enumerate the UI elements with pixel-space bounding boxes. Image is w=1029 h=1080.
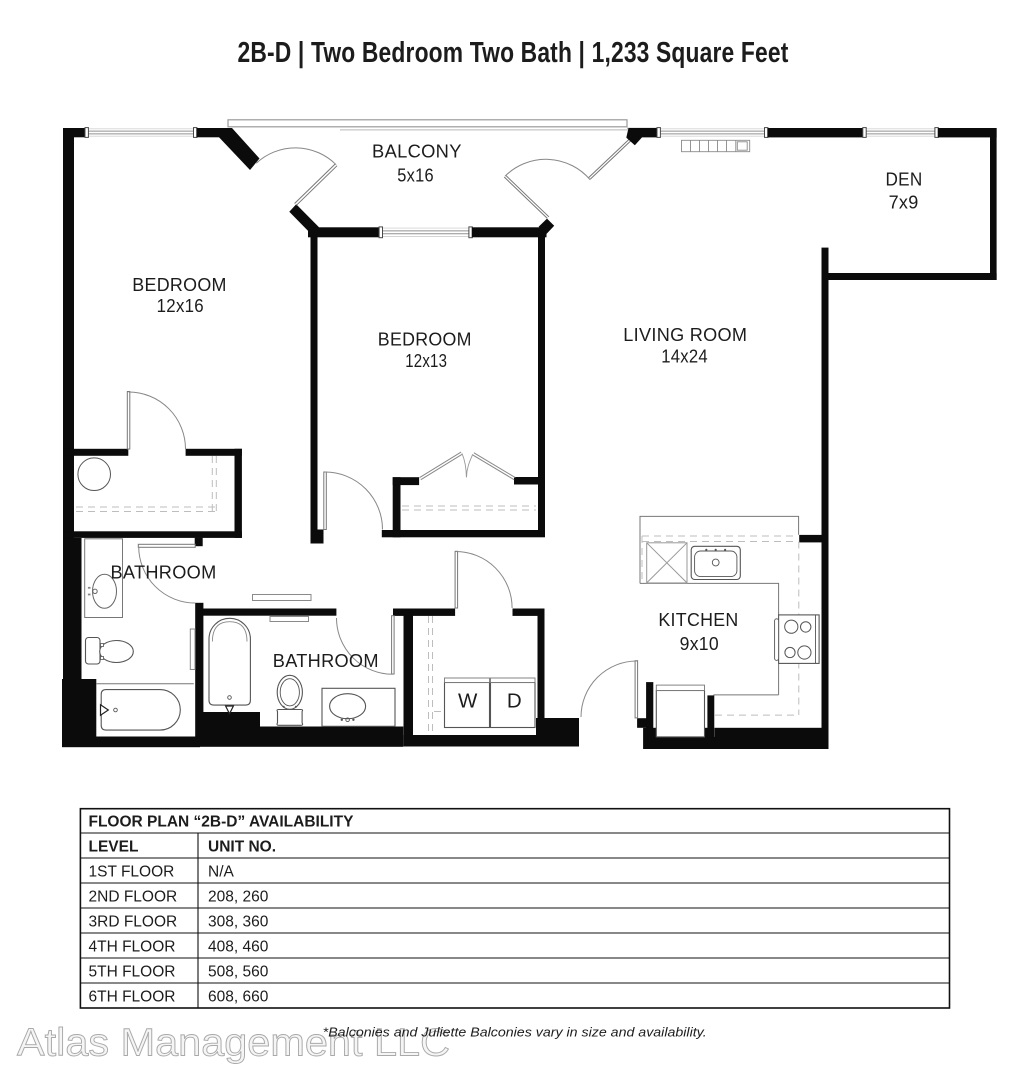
- svg-text:LEVEL: LEVEL: [89, 839, 139, 856]
- svg-text:BATHROOM: BATHROOM: [111, 561, 217, 582]
- svg-text:308, 360: 308, 360: [208, 914, 269, 931]
- svg-text:FLOOR PLAN “2B-D” AVAILABILITY: FLOOR PLAN “2B-D” AVAILABILITY: [89, 814, 355, 831]
- svg-text:D: D: [507, 690, 522, 713]
- svg-text:3RD FLOOR: 3RD FLOOR: [89, 914, 178, 931]
- svg-text:*Balconies and Juliette Balcon: *Balconies and Juliette Balconies vary i…: [323, 1025, 707, 1040]
- svg-text:UNIT NO.: UNIT NO.: [208, 839, 276, 856]
- svg-text:408, 460: 408, 460: [208, 939, 269, 956]
- svg-text:208, 260: 208, 260: [208, 889, 269, 906]
- svg-text:1ST FLOOR: 1ST FLOOR: [89, 864, 175, 881]
- svg-text:5TH FLOOR: 5TH FLOOR: [89, 964, 176, 981]
- svg-text:608, 660: 608, 660: [208, 989, 269, 1006]
- svg-text:KITCHEN: KITCHEN: [658, 609, 738, 630]
- svg-text:12x13: 12x13: [405, 350, 447, 371]
- svg-text:508, 560: 508, 560: [208, 964, 269, 981]
- svg-text:7x9: 7x9: [889, 191, 919, 212]
- svg-text:DEN: DEN: [886, 169, 923, 190]
- svg-text:9x10: 9x10: [680, 633, 719, 654]
- svg-text:BALCONY: BALCONY: [372, 141, 462, 162]
- svg-text:BEDROOM: BEDROOM: [378, 329, 472, 350]
- svg-text:6TH FLOOR: 6TH FLOOR: [89, 989, 176, 1006]
- svg-text:2B-D | Two Bedroom Two Bath |: 2B-D | Two Bedroom Two Bath | 1,233 Squa…: [238, 37, 789, 69]
- svg-text:N/A: N/A: [208, 864, 235, 881]
- svg-text:BATHROOM: BATHROOM: [273, 650, 379, 671]
- svg-text:12x16: 12x16: [157, 295, 204, 316]
- svg-text:LIVING ROOM: LIVING ROOM: [623, 324, 747, 345]
- svg-text:14x24: 14x24: [661, 346, 708, 367]
- svg-text:2ND FLOOR: 2ND FLOOR: [89, 889, 178, 906]
- svg-text:4TH FLOOR: 4TH FLOOR: [89, 939, 176, 956]
- svg-text:5x16: 5x16: [397, 165, 434, 186]
- svg-text:W: W: [458, 690, 478, 713]
- svg-text:BEDROOM: BEDROOM: [132, 274, 227, 295]
